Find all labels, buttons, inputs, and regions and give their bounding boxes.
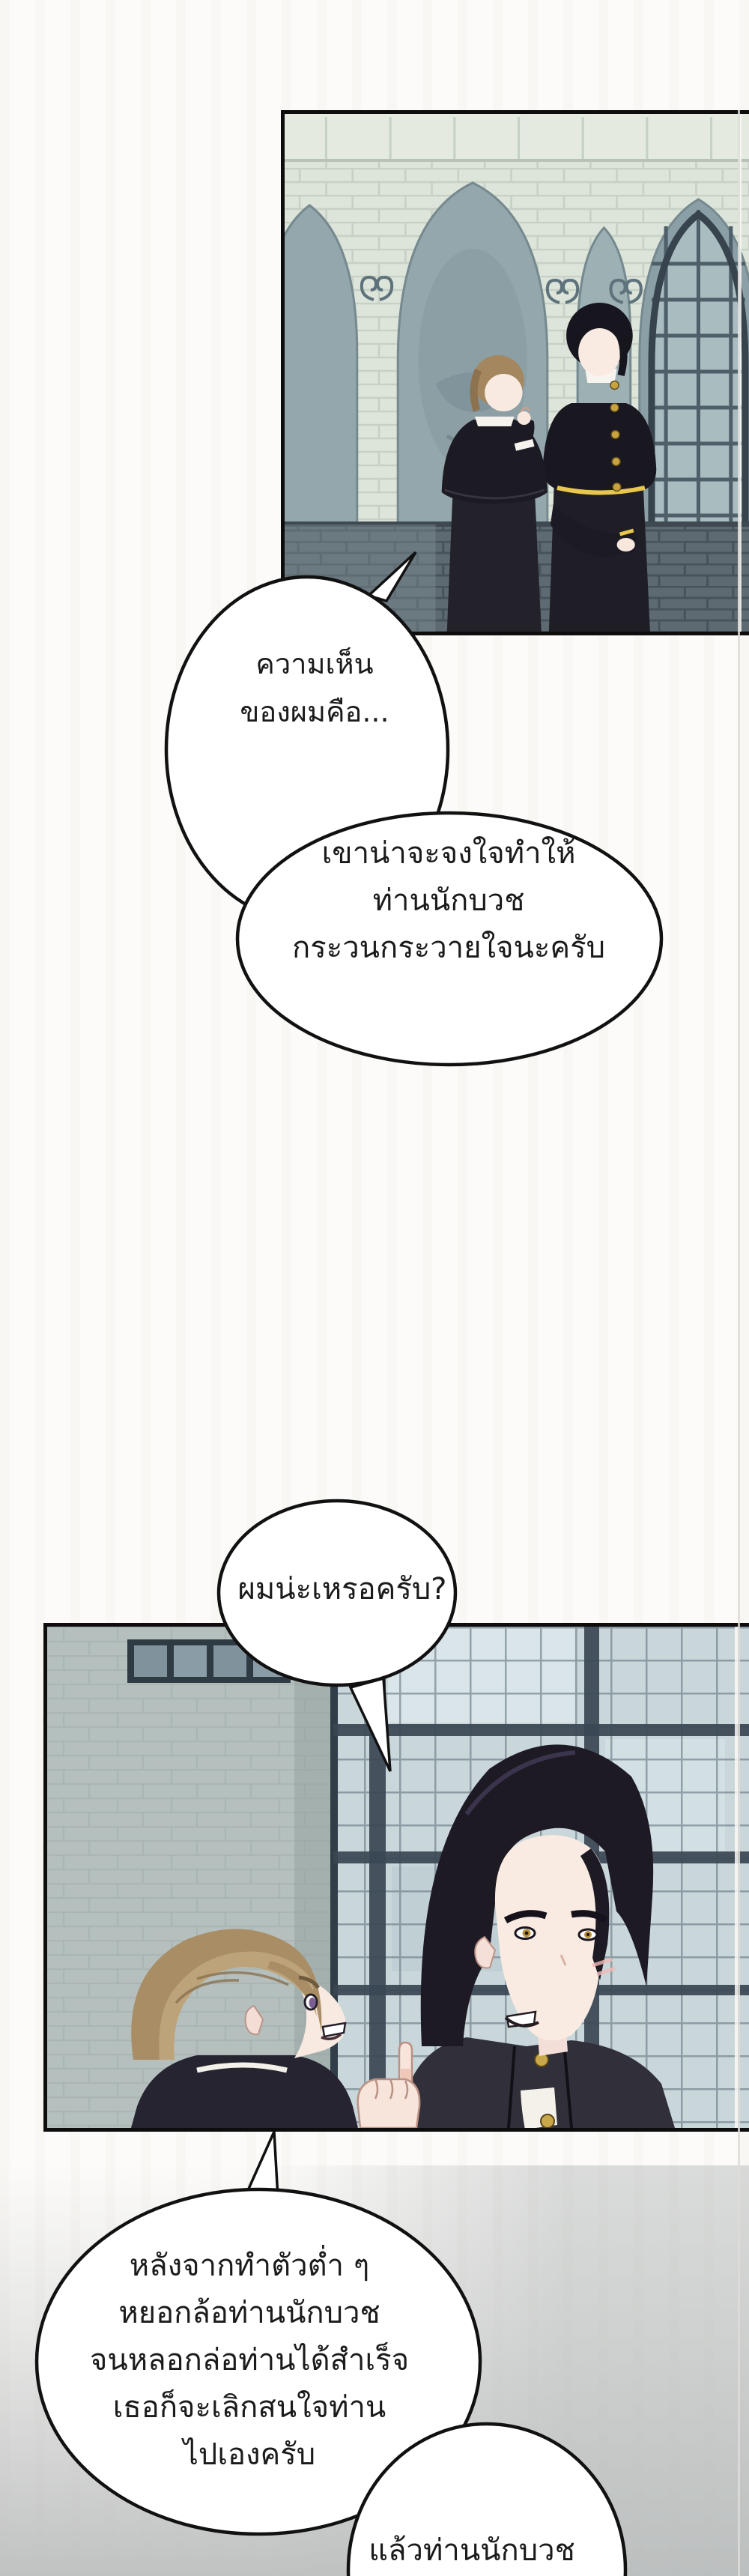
speech-text-line: เขาน่าจะจงใจทำให้ [292,830,605,877]
comic-page: ความเห็น ของผมคือ... เขาน่าจะจงใจทำให้ ท… [0,0,749,2576]
lattice-window [652,210,745,524]
speech-text-line: ผมน่ะเหรอครับ? [237,1566,446,1613]
speech-text-1b: เขาน่าจะจงใจทำให้ ท่านนักบวช กระวนกระวาย… [292,830,605,972]
speech-text-2: ผมน่ะเหรอครับ? [237,1566,446,1613]
speech-text-line: แล้วท่านนักบวช [369,2527,575,2575]
panel-2-art [47,1627,749,2128]
speech-text-line: ไปเองครับ [90,2431,409,2479]
acolyte-eye [305,1995,317,2010]
speech-text-line: หยอกล้อท่านนักบวช [90,2290,409,2337]
speech-text-line: ความเห็น [240,640,389,688]
transom-window [127,1639,291,1683]
speech-text-line: กระวนกระวายใจนะครับ [292,925,605,972]
speech-text-line: หลังจากทำตัวต่ำ ๆ [90,2243,409,2290]
stone-wall [47,1627,333,2128]
speech-text-line: จนหลอกล่อท่านได้สำเร็จ [90,2337,409,2384]
speech-text-3: หลังจากทำตัวต่ำ ๆ หยอกล้อท่านนักบวช จนหล… [90,2243,409,2479]
speech-text-1a: ความเห็น ของผมคือ... [240,640,389,736]
speech-text-line: เธอก็จะเลิกสนใจท่าน [90,2384,409,2431]
speech-text-line: ท่านนักบวช [292,877,605,925]
speech-text-4: แล้วท่านนักบวช [369,2527,575,2575]
page-edge-line [738,110,740,2576]
panel-1 [281,110,749,635]
panel-1-art [285,114,749,632]
speech-text-line: ของผมคือ... [240,688,389,736]
panel-2 [43,1623,749,2132]
